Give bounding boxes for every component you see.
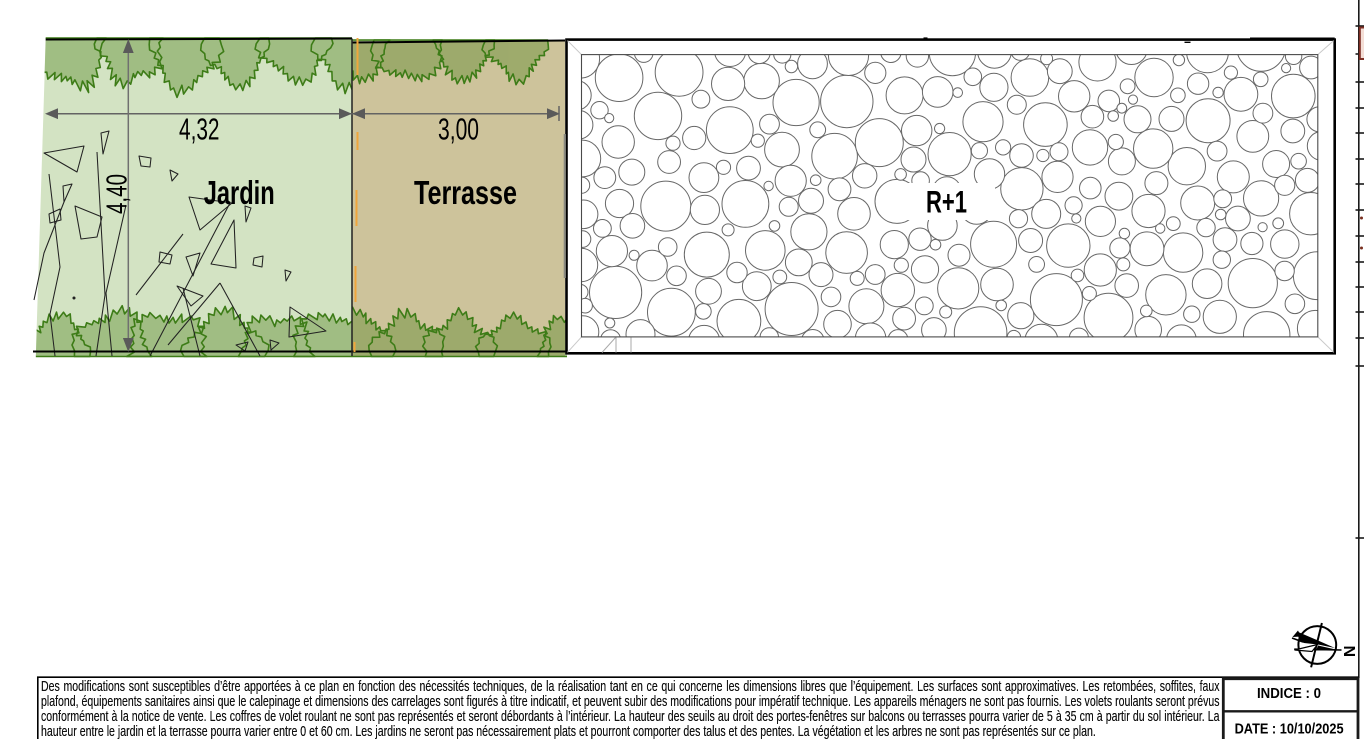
svg-text:N: N bbox=[1340, 646, 1357, 658]
svg-text:INDICE : 0: INDICE : 0 bbox=[1257, 686, 1321, 702]
svg-text:DATE : 10/10/2025: DATE : 10/10/2025 bbox=[1235, 722, 1344, 738]
svg-text:Jardin: Jardin bbox=[204, 174, 275, 211]
svg-text:Terrasse: Terrasse bbox=[414, 174, 517, 211]
svg-text:R+1: R+1 bbox=[926, 184, 967, 220]
svg-text:4,32: 4,32 bbox=[179, 112, 220, 147]
svg-text:4,40: 4,40 bbox=[102, 174, 134, 214]
svg-text:3,00: 3,00 bbox=[438, 112, 479, 147]
